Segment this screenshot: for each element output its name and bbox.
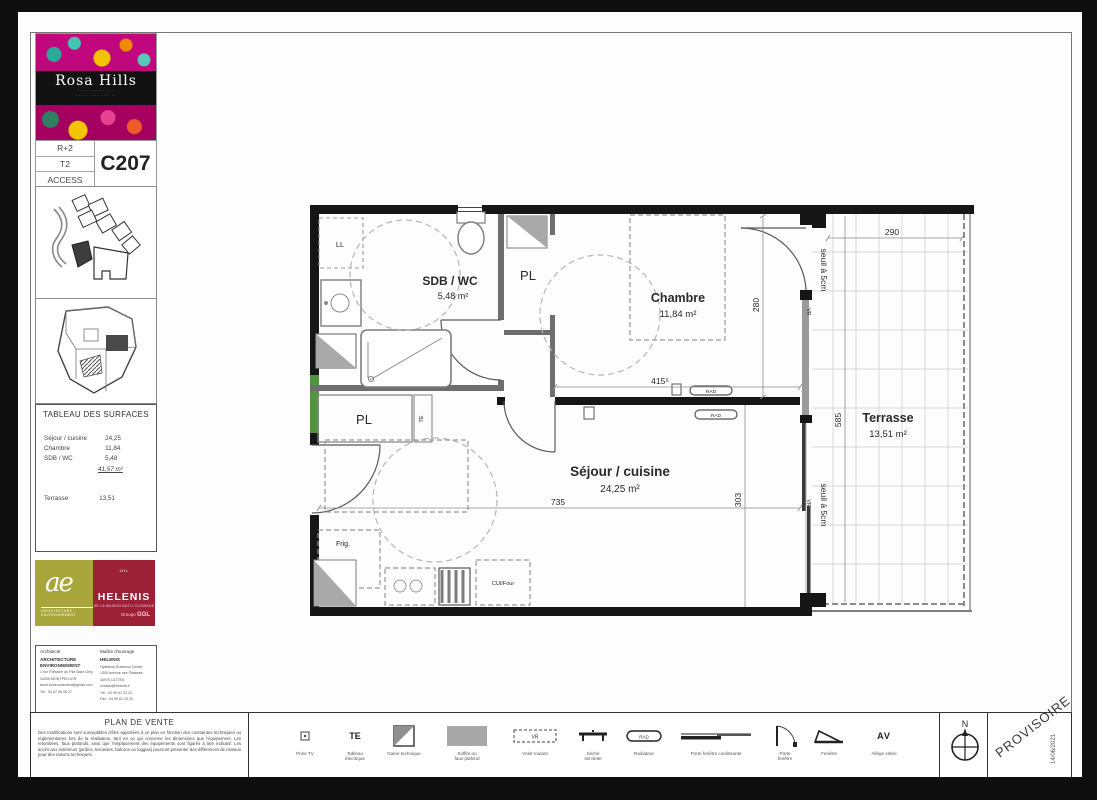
hall-closet xyxy=(318,395,432,442)
volet-roulant-icon: VR xyxy=(507,725,563,747)
legend-item-radiateur: RAD Radiateur xyxy=(621,713,667,777)
stamp-box: PROVISOIRE 14/06/2021 xyxy=(989,713,1071,777)
unit-id-table: R+2 T2 ACCESS C207 xyxy=(35,140,157,188)
surface-table-title: TABLEAU DES SURFACES xyxy=(36,410,156,419)
floor-plan: SDB / WC 5,48 m² PL PL Chambre 11,84 m² … xyxy=(300,190,985,630)
sdb-area: 5,48 m² xyxy=(438,291,469,301)
program-name: Rosa Hills xyxy=(36,74,156,89)
rad2-label: RAD xyxy=(711,413,722,419)
contacts-block: Architecte ARCHITECTURE ENVIRONNEMENT 1 … xyxy=(35,645,157,713)
owner-info: Maître d'ouvrage HELENIS Hyatance Busine… xyxy=(96,646,156,712)
legend-item-pf: Portefenêtre xyxy=(767,713,803,777)
surface-table: TABLEAU DES SURFACES Séjour / cuisine24,… xyxy=(35,404,157,552)
seuil2-label: seuil à 5cm xyxy=(819,484,829,527)
site-plan-thumbnail xyxy=(35,186,157,300)
legend-item-soffite: Soffite oufaux plafond xyxy=(439,713,495,777)
soffite-icon xyxy=(439,725,495,747)
unit-number: C207 xyxy=(95,141,156,187)
strip-divider xyxy=(939,713,940,777)
bathroom-fixtures xyxy=(316,205,547,387)
legend-item-prise-tv: Prise TV xyxy=(283,713,327,777)
glazed-wall xyxy=(802,300,809,415)
surface-row-terrace: Terrasse 13,51 xyxy=(44,495,156,502)
floor-label: R+2 xyxy=(36,141,94,157)
dim-sejour-h: 303 xyxy=(733,493,743,507)
logo-band: Rosa Hills · · · · · · · · · · · · · · ·… xyxy=(36,71,156,105)
surface-row: Séjour / cuisine24,25 xyxy=(44,433,121,443)
surface-total: 41,57 m² xyxy=(98,466,156,473)
porte-fenetre-icon xyxy=(767,725,803,747)
te-label: TE xyxy=(419,415,425,422)
dim-terrasse-w: 290 xyxy=(885,227,899,237)
surface-row: SDB / WC5,48 xyxy=(44,453,121,463)
legend-item-fenetre: Fenêtre xyxy=(807,713,851,777)
logo-pattern-bottom xyxy=(36,105,156,141)
cui-label: CUI/Four xyxy=(492,581,514,587)
bottom-strip: PLAN DE VENTE Des modifications sont sus… xyxy=(30,712,1072,777)
helenis-logo: LHL HELENIS DE LA MAISON BATI L'OUVRAGE … xyxy=(93,560,155,626)
logo-subline2: · · · · · · · · · · · · · · · xyxy=(36,94,156,99)
dim-terrasse-h: 585 xyxy=(833,413,843,427)
sliding-door xyxy=(802,423,811,593)
te-icon: TE xyxy=(333,725,377,747)
strip-divider2 xyxy=(987,713,988,777)
access-label: ACCESS xyxy=(36,172,94,187)
legend-item-gaine: Gaine technique xyxy=(379,713,429,777)
ae-logo: ae ARCHITECTURE ENVIRONNEMENT xyxy=(35,560,93,626)
sdb-label: SDB / WC xyxy=(422,274,478,288)
plan-de-vente-box: PLAN DE VENTE Des modifications sont sus… xyxy=(31,713,249,777)
fenetre-icon xyxy=(807,725,851,747)
logo-pattern-top xyxy=(36,34,156,71)
terrace-tile-grid xyxy=(812,214,968,604)
svg-text:RAD: RAD xyxy=(639,735,649,740)
legend-item-allege: AV Allège vitrée xyxy=(857,713,911,777)
dim-chambre-w: 415⁵ xyxy=(651,376,669,386)
legend-item-pfc: Porte fenêtre coulissante xyxy=(671,713,761,777)
gaine-icon xyxy=(379,725,429,747)
kitchen-fixtures xyxy=(314,560,470,606)
sheet: Rosa Hills · · · · · · · · · · · · · · ·… xyxy=(18,12,1082,777)
legend-item-volet: VR Volet roulant xyxy=(507,713,563,777)
program-logo: Rosa Hills · · · · · · · · · · · · · · ·… xyxy=(35,33,157,142)
sejour-label: Séjour / cuisine xyxy=(570,464,670,479)
legend-item-tableau: TE Tableauélectrique xyxy=(333,713,377,777)
rad1-label: RAD xyxy=(706,389,717,395)
chambre-area: 11,84 m² xyxy=(660,309,697,320)
dim-chambre-h: 280 xyxy=(751,298,761,312)
ll-label: LL xyxy=(336,240,344,249)
type-label: T2 xyxy=(36,157,94,173)
north-label: N xyxy=(962,719,969,729)
pl1-label: PL xyxy=(520,268,536,283)
key-plan-thumbnail xyxy=(35,298,157,404)
vr2-label: VR xyxy=(805,500,811,507)
porte-fenetre-coulissante-icon xyxy=(671,725,761,747)
pl2-label: PL xyxy=(356,412,372,427)
terrasse-area: 13,51 m² xyxy=(869,429,907,440)
svg-text:VR: VR xyxy=(532,735,539,741)
radiateur-icon: RAD xyxy=(621,725,667,747)
surface-row: Chambre11,84 xyxy=(44,443,121,453)
plan-labels: SDB / WC 5,48 m² PL PL Chambre 11,84 m² … xyxy=(336,227,914,587)
seuil1-label: seuil à 5cm xyxy=(819,249,829,292)
sheet-title: PLAN DE VENTE xyxy=(38,718,241,727)
company-logos: ae ARCHITECTURE ENVIRONNEMENT LHL HELENI… xyxy=(35,560,155,626)
dim-sejour-w: 735 xyxy=(551,497,565,507)
prise-tv-icon xyxy=(283,725,327,747)
terrasse-label: Terrasse xyxy=(862,411,913,425)
architect-info: Architecte ARCHITECTURE ENVIRONNEMENT 1 … xyxy=(36,646,96,712)
av-icon: AV xyxy=(857,725,911,747)
chambre-label: Chambre xyxy=(651,291,705,305)
legend-item-seche: Sècheserviette xyxy=(571,713,615,777)
sejour-area: 24,25 m² xyxy=(600,484,640,495)
stamp-date: 14/06/2021 xyxy=(1051,734,1057,764)
north-compass-box: N xyxy=(941,713,989,777)
frig-label: Frig. xyxy=(336,541,350,548)
seche-serviette-icon xyxy=(571,725,615,747)
disclaimer-text: Des modifications sont susceptibles d'êt… xyxy=(38,730,241,758)
vr1-label: VR xyxy=(805,309,811,316)
